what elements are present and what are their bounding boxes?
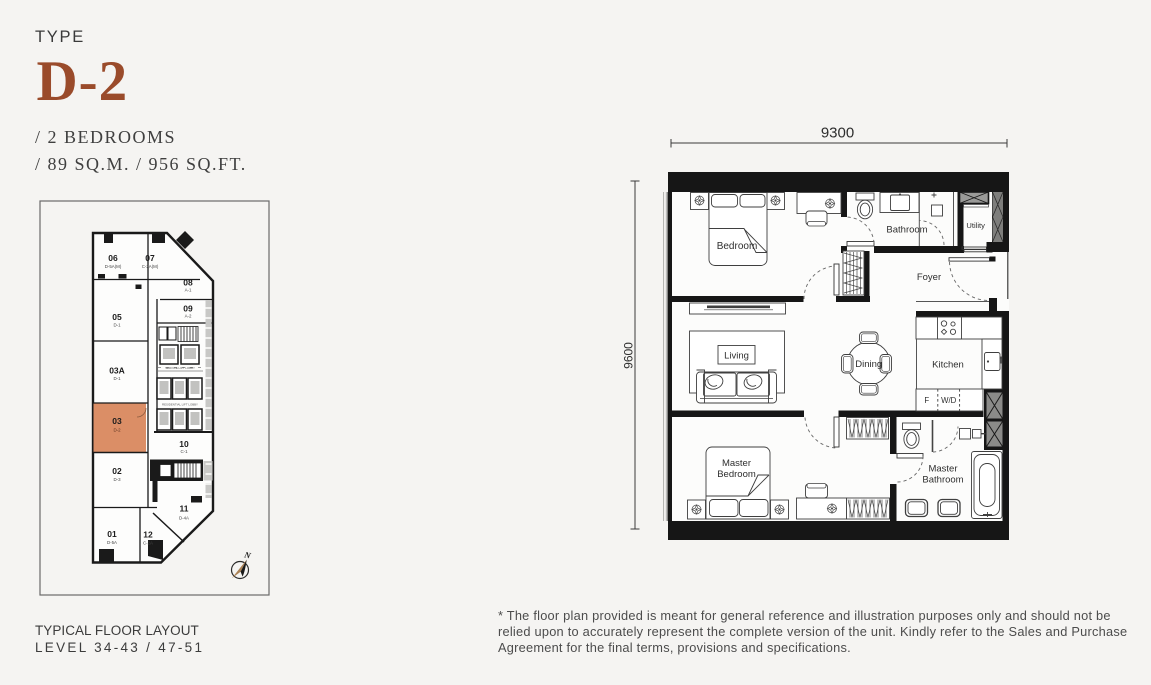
svg-text:09: 09 [183,303,193,313]
svg-text:D-1: D-1 [113,376,121,381]
svg-text:Dining: Dining [855,359,882,370]
svg-text:D-5A(M): D-5A(M) [105,264,122,269]
svg-text:Kitchen: Kitchen [932,360,964,371]
svg-text:RESIDENTIAL LIFT LOBBY: RESIDENTIAL LIFT LOBBY [162,403,198,407]
svg-text:07: 07 [145,253,155,263]
svg-text:Bedroom: Bedroom [717,241,758,252]
svg-text:02: 02 [112,466,122,476]
svg-text:06: 06 [108,253,118,263]
svg-text:C-1: C-1 [180,449,188,454]
svg-text:10: 10 [179,439,189,449]
svg-text:D-1: D-1 [113,323,121,328]
svg-text:01: 01 [107,529,117,539]
svg-text:W/D: W/D [941,396,957,405]
svg-text:N: N [242,549,252,561]
svg-text:D-4A: D-4A [179,515,189,520]
svg-text:F: F [924,396,929,405]
svg-text:Master: Master [722,458,751,469]
svg-text:Utility: Utility [966,221,985,230]
svg-text:Bedroom: Bedroom [717,469,756,480]
svg-text:D-2: D-2 [113,428,121,433]
svg-text:C-2A(M): C-2A(M) [142,264,159,269]
svg-text:Master: Master [928,464,957,475]
svg-text:C-2A: C-2A [143,541,153,546]
svg-text:D-5A: D-5A [107,540,117,545]
svg-text:05: 05 [112,312,122,322]
svg-text:Bathroom: Bathroom [922,475,963,486]
svg-text:Foyer: Foyer [917,272,941,283]
svg-text:D-3: D-3 [113,477,121,482]
svg-text:Living: Living [724,351,749,362]
svg-text:A-1: A-1 [185,288,192,293]
svg-text:11: 11 [180,503,189,513]
svg-text:03: 03 [112,416,122,426]
svg-text:9600: 9600 [622,342,636,369]
svg-text:A-2: A-2 [185,313,192,318]
svg-text:03A: 03A [109,365,125,375]
svg-text:Bathroom: Bathroom [886,225,927,236]
svg-text:SERVICE LIFT LOBBY: SERVICE LIFT LOBBY [165,366,195,370]
svg-text:9300: 9300 [821,125,854,142]
svg-text:08: 08 [183,278,193,288]
svg-text:12: 12 [143,530,153,540]
